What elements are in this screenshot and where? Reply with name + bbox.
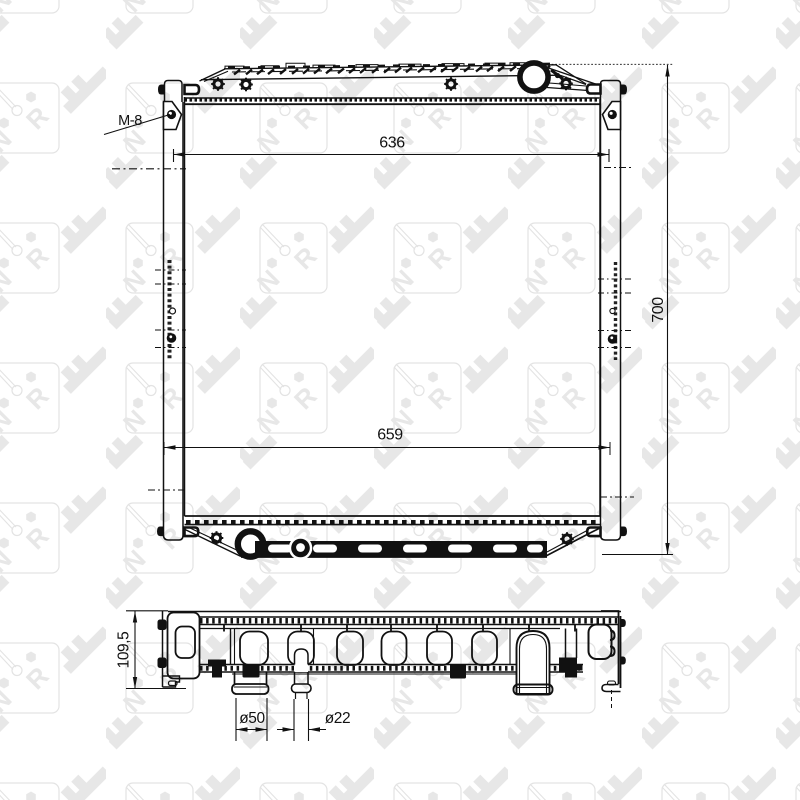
svg-text:ø22: ø22 [325, 710, 351, 727]
svg-text:636: 636 [379, 135, 405, 152]
svg-text:659: 659 [377, 427, 403, 444]
svg-text:700: 700 [650, 297, 667, 323]
svg-text:M-8: M-8 [118, 113, 142, 129]
svg-text:ø50: ø50 [239, 710, 265, 727]
svg-text:109,5: 109,5 [116, 632, 133, 669]
